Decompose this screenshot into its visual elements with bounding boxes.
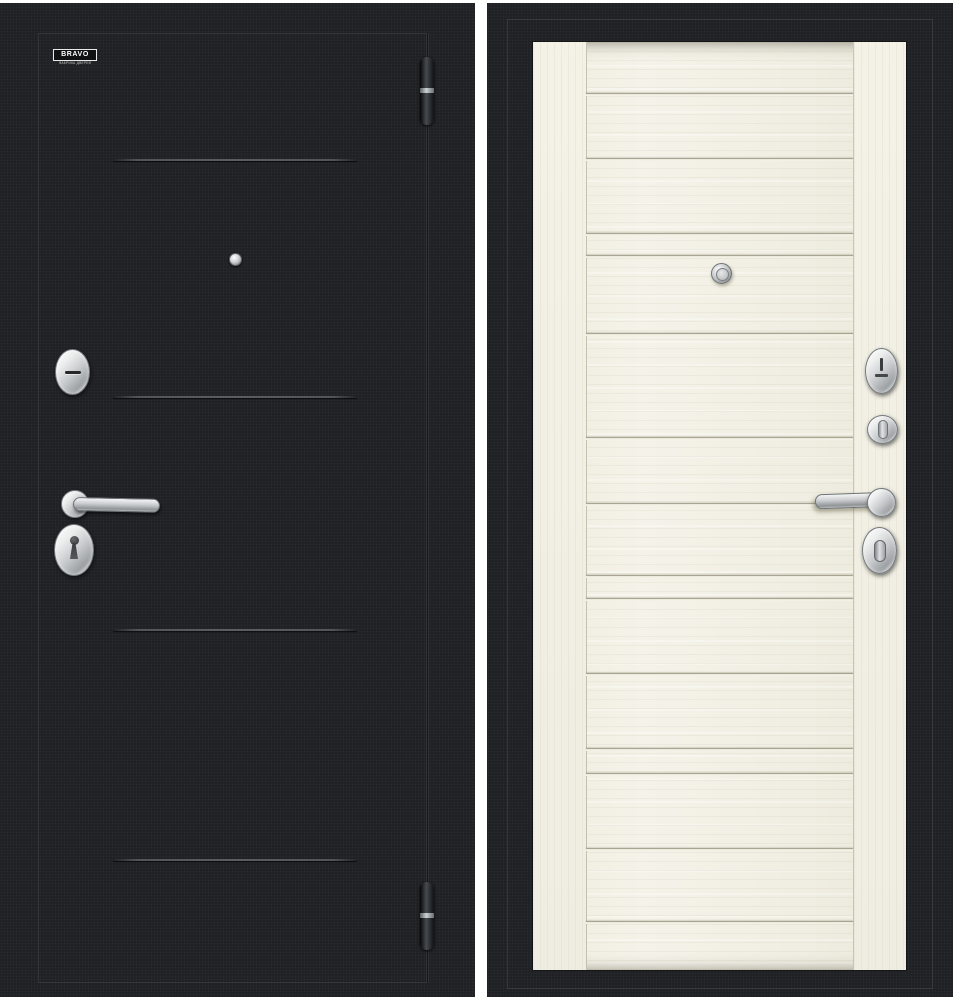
plank-groove	[586, 158, 853, 161]
plank-groove	[586, 93, 853, 96]
etched-line	[113, 396, 357, 398]
plank-groove	[586, 503, 853, 506]
plank-groove	[586, 921, 853, 924]
bottom-hinge-icon	[420, 882, 434, 950]
keyhole-escutcheon-icon	[54, 524, 94, 576]
plank-groove	[586, 598, 853, 601]
plank-groove	[586, 233, 853, 236]
plank-groove	[586, 673, 853, 676]
brand-tagline: ФАБРИКА ДВЕРЕЙ	[57, 61, 92, 65]
plank-groove	[586, 437, 853, 440]
plank-groove	[586, 333, 853, 336]
keyhole-escutcheon-icon	[865, 348, 898, 394]
peephole-icon	[711, 263, 732, 284]
plank-groove	[586, 848, 853, 851]
brand-logo: BRAVO	[53, 49, 97, 61]
left-stile	[533, 42, 587, 970]
top-hinge-icon	[420, 57, 434, 125]
peephole-icon	[229, 253, 242, 266]
brand-badge: BRAVO ФАБРИКА ДВЕРЕЙ	[53, 49, 97, 66]
keyhole-slot-icon	[70, 543, 78, 559]
plank-groove	[586, 773, 853, 776]
plank-groove	[586, 748, 853, 751]
etched-line	[113, 629, 357, 631]
product-photo-door-two-sides: BRAVO ФАБРИКА ДВЕРЕЙ	[0, 0, 953, 1000]
etched-line	[113, 159, 357, 161]
left-door-exterior-panel: BRAVO ФАБРИКА ДВЕРЕЙ	[0, 3, 475, 997]
thumbturn-icon	[862, 527, 897, 574]
door-handle-icon	[73, 497, 160, 513]
plank-groove	[586, 575, 853, 578]
door-frame-seam	[427, 33, 429, 983]
right-door-interior-panel	[487, 3, 953, 997]
etched-line	[113, 859, 357, 861]
night-latch-knob-icon	[867, 415, 898, 444]
plank-groove	[586, 255, 853, 258]
cylinder-cover-icon	[55, 349, 90, 395]
handle-rosette-icon	[867, 488, 896, 517]
